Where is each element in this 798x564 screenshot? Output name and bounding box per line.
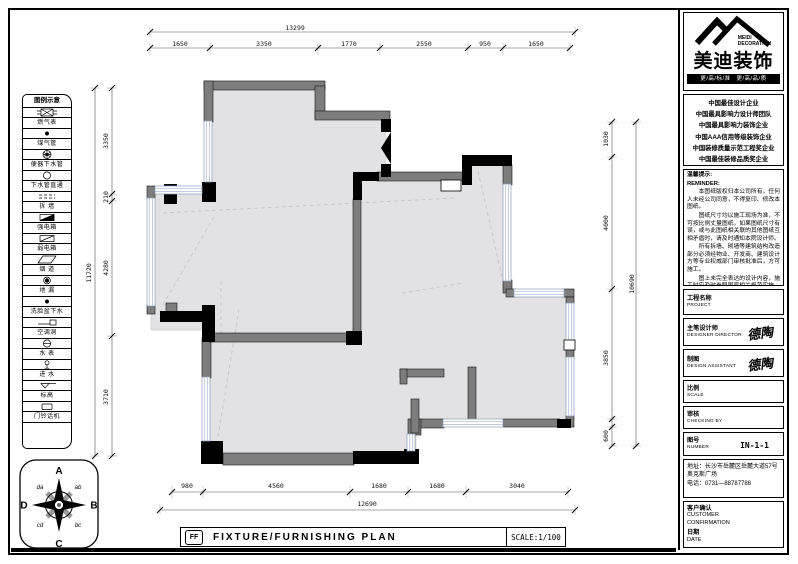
basin-drain-icon (23, 297, 71, 307)
dim-top: 950 (468, 40, 502, 48)
dim-right: 1030 (602, 122, 610, 156)
compass-east-label: B (90, 501, 97, 512)
customer-confirm-en: CONFIRMATION (687, 520, 780, 528)
power-box-icon (23, 213, 71, 223)
legend-panel: 图例示意 燃气表煤气管便器下水管下水管直通拆 墙强电箱弱电箱烟 道地 漏洗脸盆下… (22, 94, 72, 449)
ac-hole-icon (23, 318, 71, 328)
note-paragraph: 所有拆墙、砌墙等建筑结构改造部分必须经物业、开发商、建筑设计方等专业权威部门审核… (687, 244, 780, 274)
water-meter-icon (23, 339, 71, 349)
legend-item-label: 弱电箱 (23, 244, 71, 255)
legend-item-label: 拆 墙 (23, 202, 71, 213)
dim-left-total: 11720 (85, 256, 93, 290)
door-symbol (381, 119, 391, 177)
plan-code-badge: FF (185, 530, 203, 545)
drafter-signature: 德陶 (746, 352, 774, 374)
demolish-wall-icon (23, 192, 71, 202)
elevation-icon (23, 381, 71, 391)
note-paragraph: 图纸尺寸均以施工现场为准，不可按比例丈量图纸，如果图纸尺寸有误，或与此图纸相关联… (687, 213, 780, 243)
confirmation-box: 客户确认 CUSTOMER CONFIRMATION 日期 DATE (683, 501, 784, 549)
weak-power-box-icon (23, 234, 71, 244)
company-slogan: 更/高/标/准 更/高/品/质 (687, 74, 780, 84)
notes-title-en: REMINDER: (687, 181, 780, 189)
checker-row: 审核 CHECKING BY (683, 406, 784, 429)
compass-se-label: bc (75, 523, 81, 529)
drain-through-icon (23, 171, 71, 181)
dim-top: 1650 (519, 40, 553, 48)
legend-item-label: 水 表 (23, 349, 71, 360)
accolade-line: 中国最具影响力设计师团队 (684, 109, 783, 120)
designer-signature: 德陶 (746, 321, 774, 343)
accolade-line: 中国装修质量示范工程奖企业 (684, 143, 783, 154)
accolades-box: 中国最佳设计企业中国最具影响力设计师团队中国最具影响力装饰企业中国AAA信用等级… (683, 94, 784, 166)
dim-right: 600 (602, 419, 610, 453)
company-phone: 电话：0731—88787786 (687, 480, 780, 489)
project-label-en: PROJECT (687, 303, 780, 309)
dim-bottom: 3040 (500, 482, 534, 490)
legend-item-label: 洗脸盆下水 (23, 307, 71, 318)
accolade-line: 中国AAA信用等级装饰企业 (684, 132, 783, 143)
drawing-sheet: 13299 1650 3350 1770 2550 950 1650 11720… (0, 0, 798, 564)
dim-left: 3350 (102, 124, 110, 158)
scale-row: 比例 SCALE (683, 380, 784, 403)
company-logo-box: MEIDI DECORATION 美迪装饰 更/高/标/准 更/高/品/质 (683, 12, 784, 91)
gas-pipe-icon (23, 129, 71, 139)
title-bar: FF FIXTURE/FURNISHING PLAN SCALE:1/100 (180, 527, 566, 547)
customer-confirm-en: CUSTOMER (687, 512, 780, 520)
door-phone-icon (23, 402, 71, 412)
gas-meter-icon (23, 108, 71, 118)
legend-item-label: 地 漏 (23, 286, 71, 297)
flue-icon (23, 255, 71, 265)
number-row: 图号 NUMBER IN-1-1 (683, 432, 784, 455)
company-name-zh: 美迪装饰 (684, 52, 783, 72)
compass-rose: A C B D da ab cd bc (14, 454, 104, 554)
compass-ne-label: ab (75, 485, 82, 491)
dim-right-total: 10690 (628, 267, 636, 301)
bottom-rule (11, 548, 676, 552)
legend-item-label: 便器下水管 (23, 160, 71, 171)
dim-bottom: 1680 (362, 482, 396, 490)
dim-left: 4280 (102, 251, 110, 285)
drawing-number: IN-1-1 (740, 441, 769, 450)
project-row: 工程名称 PROJECT (683, 289, 784, 314)
dim-bottom: 1680 (420, 482, 454, 490)
scale-label-zh: 比例 (687, 385, 780, 393)
dim-top: 3350 (247, 40, 281, 48)
dim-bottom-total: 12690 (350, 500, 384, 508)
dim-right: 4000 (602, 206, 610, 240)
dim-top: 1650 (163, 40, 197, 48)
dim-bottom: 4560 (259, 482, 293, 490)
dim-top: 2550 (407, 40, 441, 48)
compass-sw-label: cd (37, 523, 44, 529)
notes-title-zh: 温馨提示: (687, 172, 780, 180)
customer-confirm-zh: 客户确认 (687, 505, 780, 513)
compass-west-label: D (20, 501, 27, 512)
toilet-drain-icon (23, 150, 71, 160)
floor-drain-icon (23, 276, 71, 286)
scale-label-en: SCALE (687, 393, 780, 399)
legend-item-label: 下水管直通 (23, 181, 71, 192)
project-label-zh: 工程名称 (687, 295, 780, 303)
compass-north-label: A (55, 466, 62, 477)
legend-item-label: 强电箱 (23, 223, 71, 234)
legend-item-label: 燃气表 (23, 118, 71, 129)
accolade-line: 中国最具影响力装饰企业 (684, 120, 783, 131)
legend-item-label: 进 水 (23, 370, 71, 381)
date-label-en: DATE (687, 537, 780, 545)
legend-item-label: 标高 (23, 391, 71, 402)
scale-label: SCALE:1/100 (506, 528, 565, 546)
accolade-line: 中国最佳装修品质奖企业 (684, 154, 783, 165)
dim-right: 3850 (602, 341, 610, 375)
company-name-en: DECORATION (738, 41, 771, 47)
dim-left: 3710 (102, 380, 110, 414)
legend-title: 图例示意 (23, 95, 71, 108)
title-block-panel: MEIDI DECORATION 美迪装饰 更/高/标/准 更/高/品/质 中国… (678, 10, 786, 550)
legend-item-label: 烟 道 (23, 265, 71, 276)
compass-nw-label: da (37, 485, 44, 491)
drafter-row: 制图 DESIGN ASSISTANT 德陶 (683, 349, 784, 377)
water-inlet-icon (23, 360, 71, 370)
note-paragraph: 本图纸版权归本公司所有，任何人未经公司同意，不得复印、修改本图纸。 (687, 189, 780, 212)
checker-label-en: CHECKING BY (687, 419, 780, 425)
plan-title: FIXTURE/FURNISHING PLAN (213, 532, 506, 543)
dim-bottom: 980 (170, 482, 204, 490)
legend-item-label: 煤气管 (23, 139, 71, 150)
legend-item-label: 门铃话机 (23, 412, 71, 423)
company-address: 地址：长沙市岳麓区岳麓大道57号奥克斯广场 (687, 463, 780, 480)
notes-box: 温馨提示: REMINDER: 本图纸版权归本公司所有，任何人未经公司同意，不得… (683, 169, 784, 286)
dim-left: 210 (102, 180, 110, 214)
note-paragraph: 图上未完全表达的设计内容，施工时应及时参照国家相关规范实施。 (687, 276, 780, 287)
date-label-zh: 日期 (687, 529, 780, 537)
dim-top-total: 13299 (278, 24, 312, 32)
legend-items: 燃气表煤气管便器下水管下水管直通拆 墙强电箱弱电箱烟 道地 漏洗脸盆下水空调洞水… (23, 108, 71, 423)
checker-label-zh: 审核 (687, 411, 780, 419)
legend-item-label: 空调洞 (23, 328, 71, 339)
accolade-line: 中国最佳设计企业 (684, 98, 783, 109)
designer-row: 主笔设计师 DESIGNER DIRECTOR 德陶 (683, 318, 784, 346)
contact-box: 地址：长沙市岳麓区岳麓大道57号奥克斯广场 电话：0731—88787786 (683, 459, 784, 498)
dim-top: 1770 (332, 40, 366, 48)
